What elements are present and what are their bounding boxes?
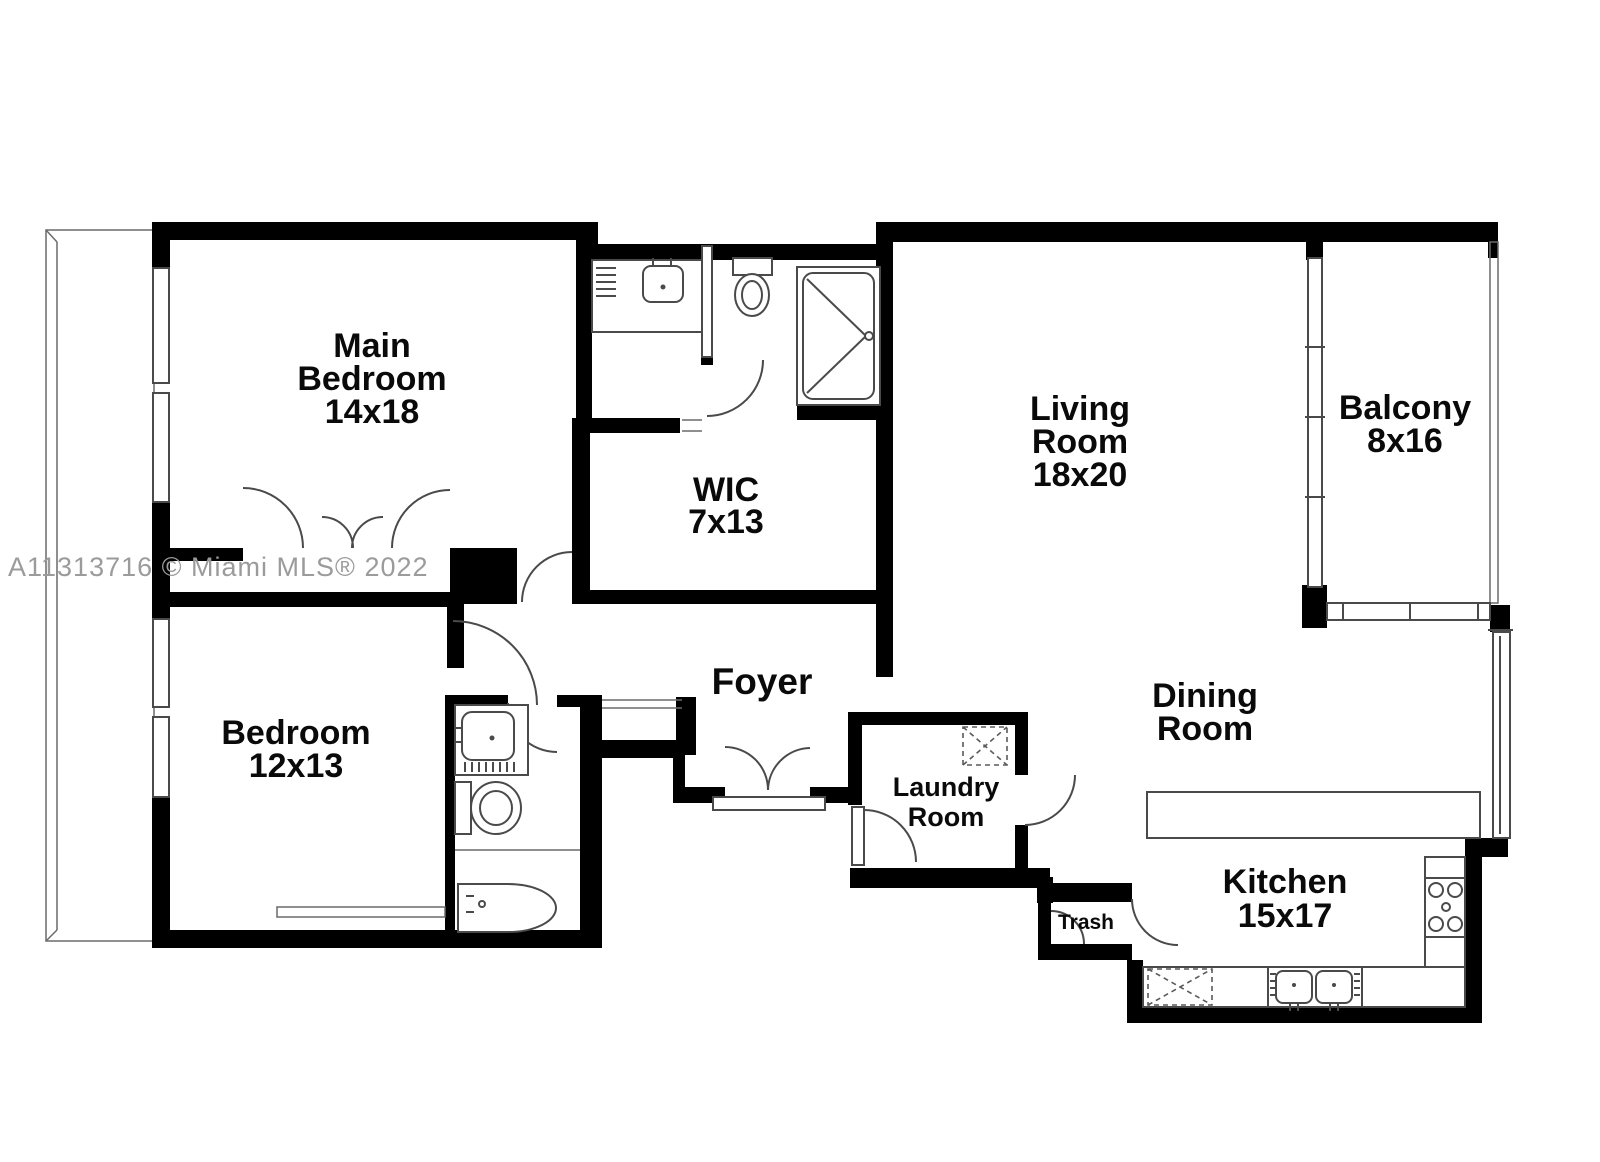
svg-text:Trash: Trash xyxy=(1058,911,1114,934)
svg-text:15x17: 15x17 xyxy=(1238,897,1333,935)
svg-text:7x13: 7x13 xyxy=(688,503,764,541)
svg-text:8x16: 8x16 xyxy=(1367,422,1443,460)
svg-text:Room: Room xyxy=(1157,710,1253,748)
suite-door-swing-icon xyxy=(522,552,572,602)
svg-text:14x18: 14x18 xyxy=(325,393,420,431)
wic-label: WIC 7x13 xyxy=(688,471,764,541)
laundry-dining-door-swing-icon xyxy=(1025,775,1075,825)
floor-plan: Main Bedroom 14x18 WIC 7x13 Living Room … xyxy=(0,0,1600,1162)
kitchen-peninsula-counter xyxy=(1147,792,1480,838)
second-bathroom-fixtures xyxy=(455,705,580,932)
dining-room-label: Dining Room xyxy=(1152,677,1258,748)
bathtub-icon xyxy=(458,884,556,932)
svg-text:Foyer: Foyer xyxy=(712,661,813,702)
laundry-room-label: Laundry Room xyxy=(893,772,1000,832)
kitchen-sink-icon xyxy=(1268,967,1362,1011)
bedroom-door-swing-icon xyxy=(453,621,537,705)
toilet-icon xyxy=(455,782,521,834)
shower-icon xyxy=(797,267,880,405)
stove-icon xyxy=(1425,878,1465,937)
balcony-label: Balcony 8x16 xyxy=(1339,389,1471,460)
trash-kitchen-door-swing-icon xyxy=(1132,899,1178,945)
vanity-sink-icon xyxy=(592,258,702,332)
svg-text:18x20: 18x20 xyxy=(1033,456,1128,494)
foyer-label: Foyer xyxy=(712,661,813,702)
toilet-icon xyxy=(733,258,772,316)
west-terrace-outline xyxy=(46,230,154,941)
bedroom-label: Bedroom 12x13 xyxy=(221,714,370,785)
washer-dryer-icon xyxy=(963,727,1007,765)
trash-label: Trash xyxy=(1058,911,1114,934)
living-room-label: Living Room 18x20 xyxy=(1030,390,1130,494)
bifold-closet-door-icon xyxy=(243,488,450,548)
svg-text:Laundry: Laundry xyxy=(893,772,1000,802)
svg-text:Room: Room xyxy=(908,802,985,832)
vanity-sink-icon xyxy=(455,705,528,775)
mls-watermark: A11313716 © Miami MLS® 2022 xyxy=(8,552,429,583)
svg-text:Kitchen: Kitchen xyxy=(1223,863,1348,901)
bathroom1-door-swing-icon xyxy=(707,360,763,416)
double-entry-door-icon xyxy=(725,747,810,790)
main-bathroom-fixtures xyxy=(592,258,880,405)
svg-text:12x13: 12x13 xyxy=(249,747,344,785)
laundry-door-swing-icon xyxy=(852,807,916,865)
kitchen-label: Kitchen 15x17 xyxy=(1223,863,1348,935)
main-bedroom-label: Main Bedroom 14x18 xyxy=(297,327,446,431)
